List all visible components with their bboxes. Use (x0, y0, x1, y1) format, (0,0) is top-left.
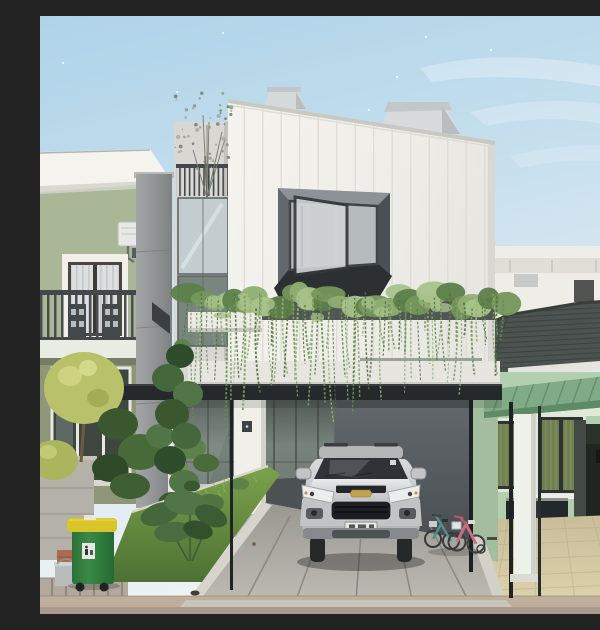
open-window-pane (295, 197, 347, 275)
porch-column (510, 414, 540, 582)
canopy-post-right (469, 400, 473, 572)
rooftop-box (514, 274, 538, 287)
main-house (174, 87, 495, 400)
drain-hole (191, 591, 200, 596)
left-house-balcony-railing (40, 290, 138, 341)
front-tire-right (397, 536, 412, 562)
chevrolet-bowtie (350, 490, 372, 497)
wall-sconce (596, 450, 600, 463)
side-mirror-left (296, 468, 311, 479)
bin-sticker (82, 543, 95, 559)
house-photo: Street-level photograph of a modern thre… (40, 16, 600, 614)
driveway-apron (180, 600, 512, 607)
leaf-debris (252, 542, 256, 546)
trash-bin (67, 515, 120, 592)
debris (487, 537, 497, 540)
canopy-post-left (230, 400, 233, 590)
roof-rail-right (374, 443, 398, 447)
pergola-pole-left (509, 402, 513, 598)
side-mirror-right (411, 468, 426, 479)
front-tire-left (310, 536, 325, 562)
car-roof (319, 446, 403, 459)
pergola-pole-right (538, 406, 541, 596)
bay-window (274, 188, 392, 300)
terrace-railing (176, 164, 230, 168)
grille (331, 485, 391, 520)
roof-rail-left (324, 443, 348, 447)
vent-unit (574, 280, 594, 302)
